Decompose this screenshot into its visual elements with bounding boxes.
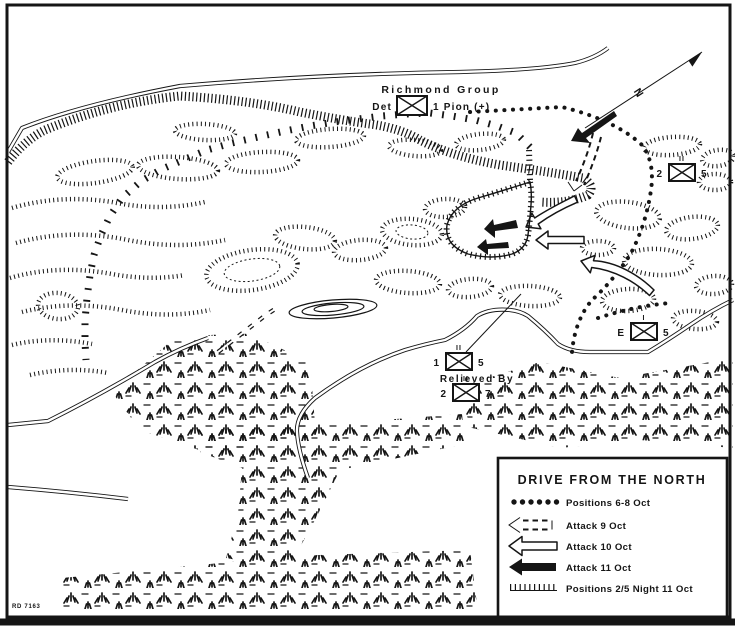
unit-size: I [643,315,646,322]
solid-arrow-northeast [571,111,617,143]
legend-label-0: Positions 6-8 Oct [566,498,651,509]
unit-left: E [617,328,625,339]
open-arrow-middle [536,231,584,249]
unit-right: 5 [478,358,485,369]
unit-left: 2 [656,169,663,180]
legend-title: DRIVE FROM THE NORTH [518,473,707,487]
legend-label-2: Attack 10 Oct [566,542,632,553]
richmond-group-label: Richmond Group [381,84,500,96]
legend-label-3: Attack 11 Oct [566,563,632,574]
unit-right: 5 [701,169,708,180]
unit-left: 1 [433,358,440,369]
unit-1-5: 1 5 II [433,294,521,370]
north-arrow: N [585,52,702,128]
road-southwest-stub [8,487,128,499]
legend: DRIVE FROM THE NORTH Positions 6-8 Oct A… [498,458,727,618]
unit-right: 7 [485,389,492,400]
front-line [85,113,530,360]
unit-prefix: Det [372,102,392,113]
map-document: N Richmond Group Det 1 Pion (+) 2 5 II E… [0,0,735,628]
marsh-south-lobe [200,414,465,562]
marsh-bottom-strip [62,550,478,612]
road-northwest [8,48,608,152]
attack-10-oct-arrows [526,196,654,296]
drawing-number: RD 7163 [12,604,41,610]
map-canvas: N Richmond Group Det 1 Pion (+) 2 5 II E… [0,0,735,628]
north-label: N [631,86,645,99]
unit-size: II [456,345,462,352]
unit-e-5: E 5 I [617,315,669,340]
unit-size: II [463,376,469,383]
marsh-right-band [455,358,733,448]
legend-label-4: Positions 2/5 Night 11 Oct [566,584,693,595]
open-arrow-upper [526,196,578,229]
legend-label-1: Attack 9 Oct [566,521,627,532]
unit-leader-line [466,294,521,352]
unit-left: 2 [440,389,447,400]
terrain-hills [10,122,735,375]
solid-arrow-center-lower [477,239,509,255]
unit-right: 5 [663,328,670,339]
solid-arrow-center-upper [484,219,518,238]
unit-size: II [679,156,685,163]
unit-suffix: 1 Pion (+) [433,102,490,113]
